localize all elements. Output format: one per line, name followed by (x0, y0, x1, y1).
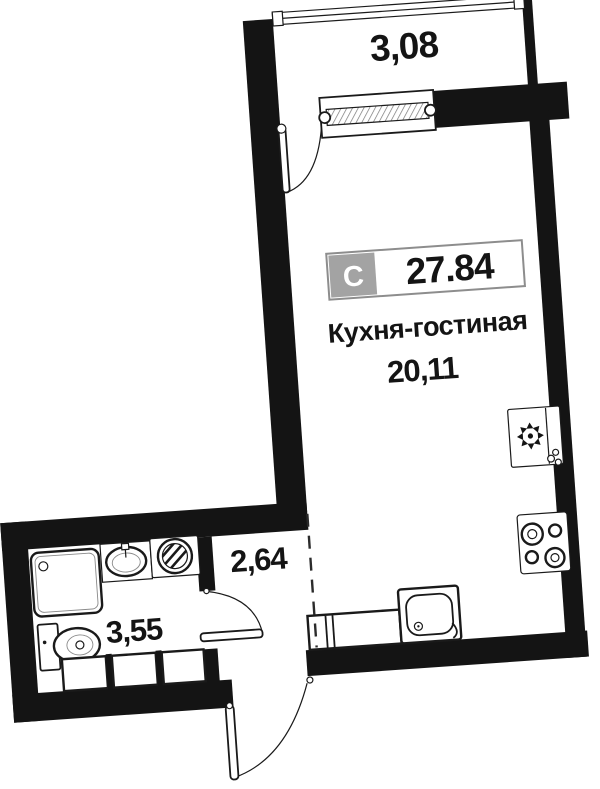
entry-door-leaf (226, 705, 239, 779)
fridge-detail-circle (552, 449, 558, 455)
shower-tray-icon (30, 548, 102, 617)
kitchen-living-zone: С 27.84 Кухня-гостиная 20,11 (282, 238, 575, 650)
hallway-area-label: 2,64 (229, 540, 289, 579)
counter-box (307, 610, 401, 650)
wall-bathroom-left (0, 521, 40, 722)
entry-door-hinge (226, 702, 232, 708)
window-cap-right (425, 104, 437, 116)
fridge-detail-circle (547, 455, 554, 462)
kitchen-living-area-label: 20,11 (386, 350, 460, 390)
balcony-zone: 3,08 (272, 0, 528, 76)
fridge-detail-circle (555, 459, 561, 465)
wall-left (243, 19, 307, 514)
bottom-unit-box (162, 649, 206, 684)
kitchen-living-name-label: Кухня-гостиная (327, 305, 528, 349)
balcony-window-unit (318, 90, 438, 138)
kitchen-sink-icon (398, 585, 462, 643)
bottom-unit-box (112, 653, 158, 688)
window-cap-left (319, 112, 331, 124)
fridge-icon (508, 406, 564, 468)
entry-door-jamb-cap (307, 677, 313, 683)
bath-sink-icon (100, 541, 153, 582)
bathroom-zone: 3,55 (30, 535, 208, 694)
balcony-glazing-cap-left (272, 11, 283, 26)
entry-door-swing-arc (228, 683, 313, 777)
badge-type-letter: С (342, 260, 365, 293)
balcony-door-hinge (277, 124, 287, 134)
bathroom-door-jamb-cap (204, 588, 210, 594)
bath-sink-tap (121, 543, 128, 549)
bottom-unit-box (62, 656, 108, 691)
floor-plan-page: 3,08 С 27.84 Кухня-гостиная 20,11 (0, 0, 600, 789)
floor-plan-canvas: 3,08 С 27.84 Кухня-гостиная 20,11 (0, 0, 600, 789)
bath-sink-tap-spout (125, 550, 126, 558)
bathroom-door (197, 585, 263, 642)
kitchen-counter (307, 610, 401, 650)
balcony-door (277, 121, 326, 192)
badge-total-area: 27.84 (404, 245, 496, 292)
wall-right (529, 110, 587, 658)
kitchen-sink-basin (405, 593, 454, 636)
washing-machine-icon (150, 535, 201, 577)
shower-tray-outer (30, 548, 102, 617)
fridge-body (508, 406, 564, 467)
entry-door (224, 677, 320, 780)
balcony-glazing-cap-right (514, 0, 525, 9)
floor-plan: 3,08 С 27.84 Кухня-гостиная 20,11 (0, 0, 600, 789)
bathroom-door-leaf (200, 629, 262, 641)
balcony-area-label: 3,08 (369, 24, 440, 70)
stove-icon (517, 512, 571, 574)
area-badge: С 27.84 (326, 240, 525, 300)
bathroom-area-label: 3,55 (105, 611, 164, 650)
